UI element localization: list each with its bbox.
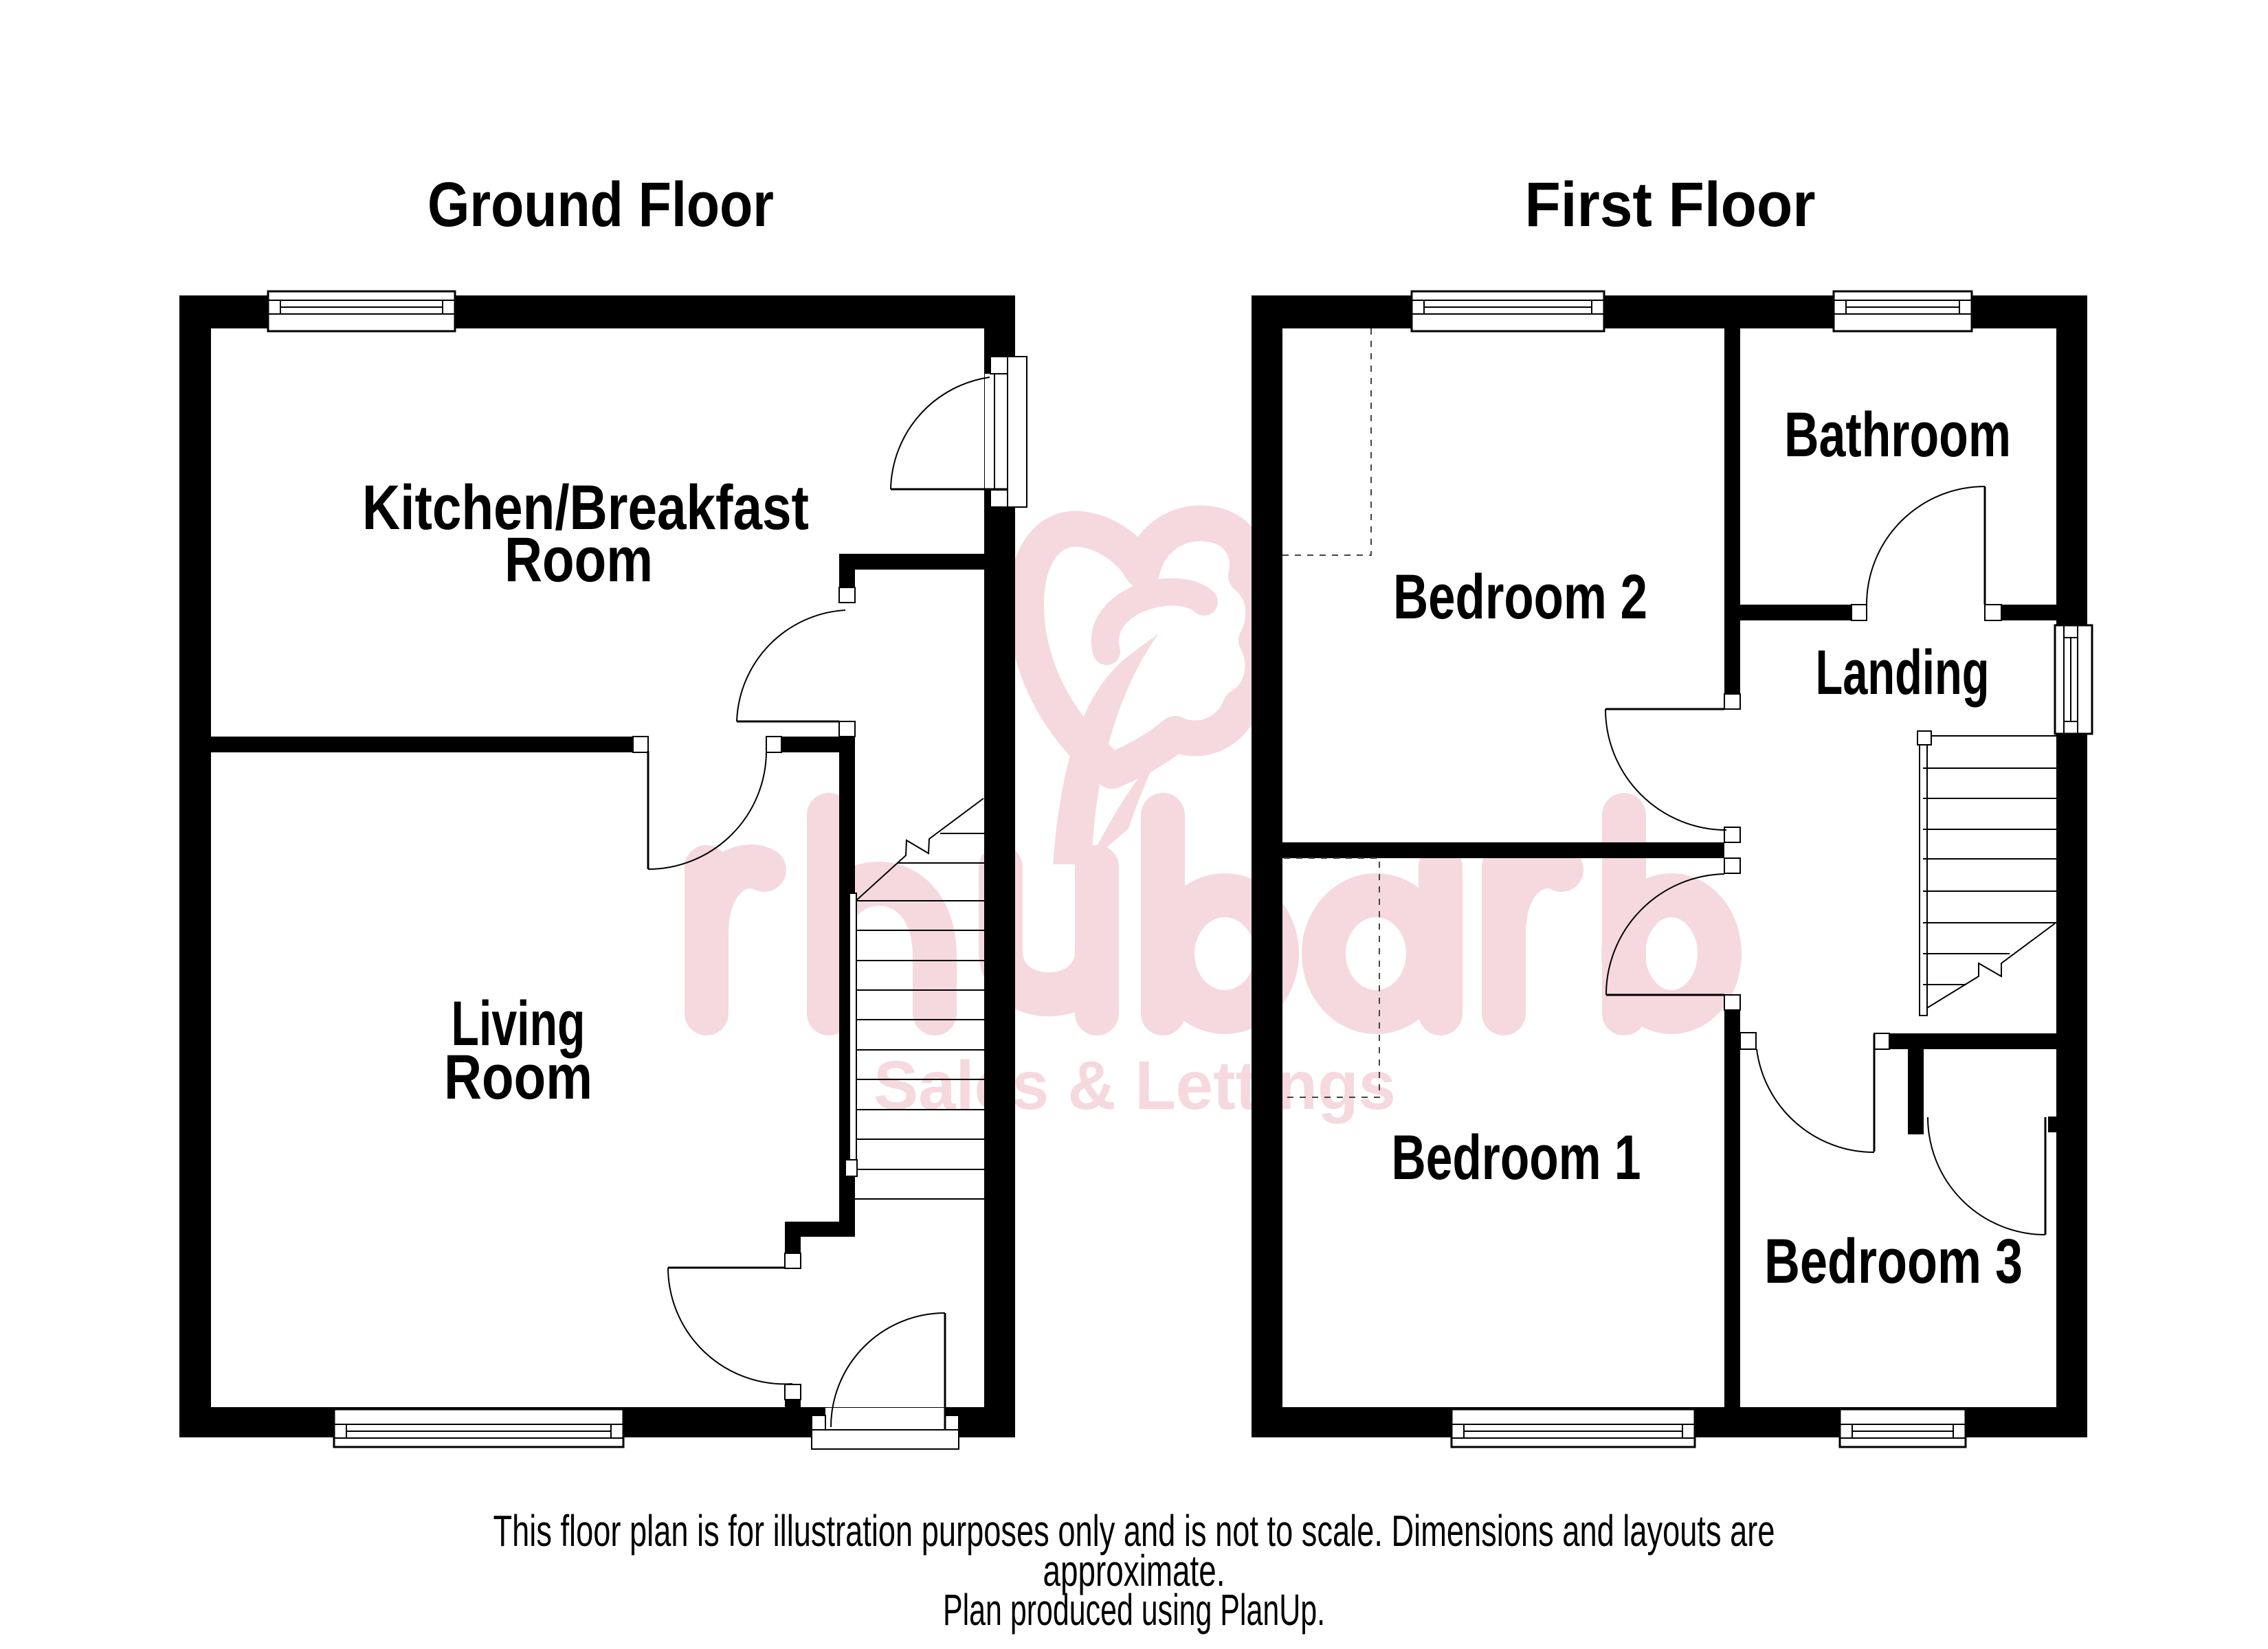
- svg-text:Landing: Landing: [1816, 638, 1990, 708]
- svg-text:Bedroom 1: Bedroom 1: [1392, 1123, 1641, 1193]
- svg-text:Sales & Lettings: Sales & Lettings: [874, 1047, 1396, 1124]
- svg-text:Bathroom: Bathroom: [1784, 400, 2011, 470]
- svg-text:Room: Room: [444, 1042, 592, 1112]
- svg-text:Bedroom 3: Bedroom 3: [1764, 1226, 2023, 1297]
- svg-text:Room: Room: [504, 525, 653, 595]
- svg-text:Plan produced using PlanUp.: Plan produced using PlanUp.: [943, 1585, 1325, 1635]
- svg-text:Ground Floor: Ground Floor: [427, 170, 774, 240]
- svg-text:First Floor: First Floor: [1525, 170, 1816, 240]
- svg-text:Bedroom 2: Bedroom 2: [1393, 562, 1647, 632]
